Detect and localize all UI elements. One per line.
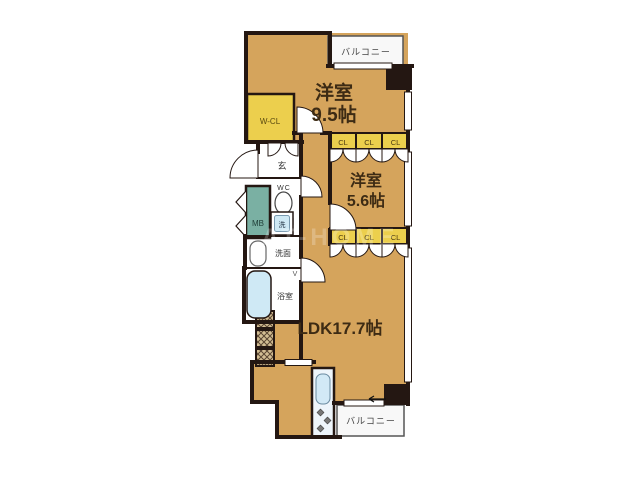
window-bedroom1 (405, 92, 412, 130)
window-kitchen (285, 360, 312, 366)
bath-vent-label: V (293, 271, 298, 278)
kitchen-sink-icon (316, 374, 330, 404)
entrance-cabinet-doors (268, 143, 298, 156)
cl-label-1: CL (338, 138, 348, 147)
bedroom1-label-line1: 洋室 (315, 81, 353, 104)
bedroom1-label-line2: 9.5帖 (311, 103, 356, 126)
bedroom2-label-line2: 5.6帖 (347, 191, 385, 210)
bathtub-icon (247, 271, 271, 318)
watermark-text: AT-HOME (262, 224, 399, 251)
wc-label: WC (277, 185, 291, 192)
window-ldk (405, 248, 412, 382)
ldk-label: LDK17.7帖 (297, 318, 382, 338)
meter-box-doors-icon (236, 191, 246, 237)
floorplan-canvas: 洋室 9.5帖 洋室 5.6帖 LDK17.7帖 バルコニー バルコニー W-C… (0, 0, 640, 480)
bedroom2-label-line1: 洋室 (350, 171, 382, 190)
wcl-label: W-CL (260, 117, 281, 126)
pipe-space-boxes (256, 311, 274, 366)
cl-label-2: CL (364, 138, 374, 147)
window-top-balcony (334, 63, 392, 69)
bath-label: 浴室 (277, 291, 293, 301)
balcony-top-label: バルコニー (341, 47, 391, 57)
pipe-space-2 (256, 330, 274, 347)
window-bottom-balcony (344, 400, 384, 406)
cl-label-3: CL (391, 138, 401, 147)
window-bedroom2 (405, 152, 412, 226)
balcony-bottom-label: バルコニー (346, 416, 396, 426)
entrance-label: 玄 (277, 160, 286, 171)
floorplan-svg: 洋室 9.5帖 洋室 5.6帖 LDK17.7帖 バルコニー バルコニー W-C… (0, 0, 640, 480)
door-arc-entrance (230, 150, 258, 178)
toilet-icon (275, 192, 292, 214)
